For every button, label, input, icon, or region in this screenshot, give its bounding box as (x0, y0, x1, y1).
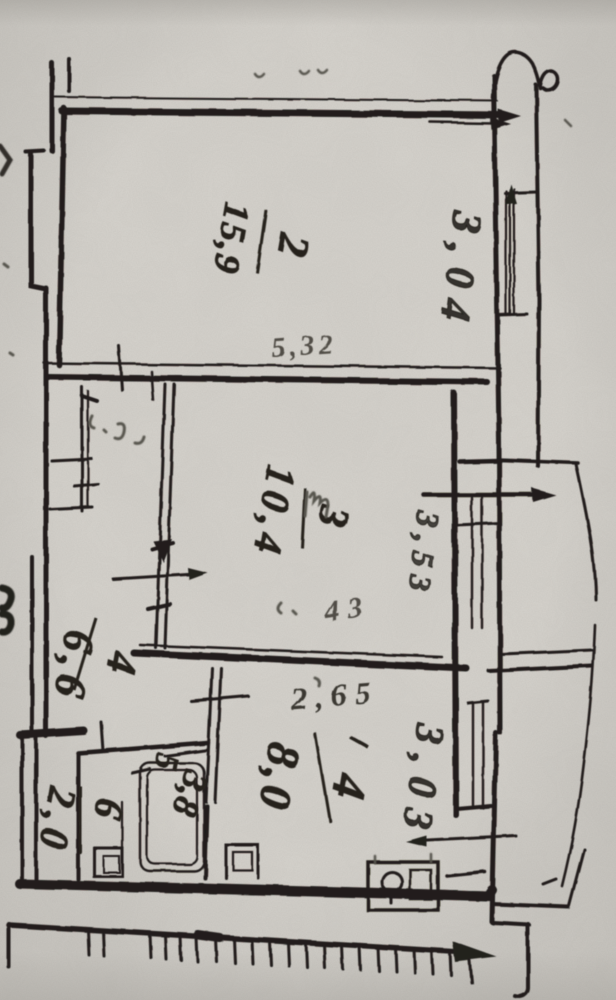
svg-text:5,32: 5,32 (270, 329, 337, 364)
svg-text:43: 43 (321, 590, 372, 629)
